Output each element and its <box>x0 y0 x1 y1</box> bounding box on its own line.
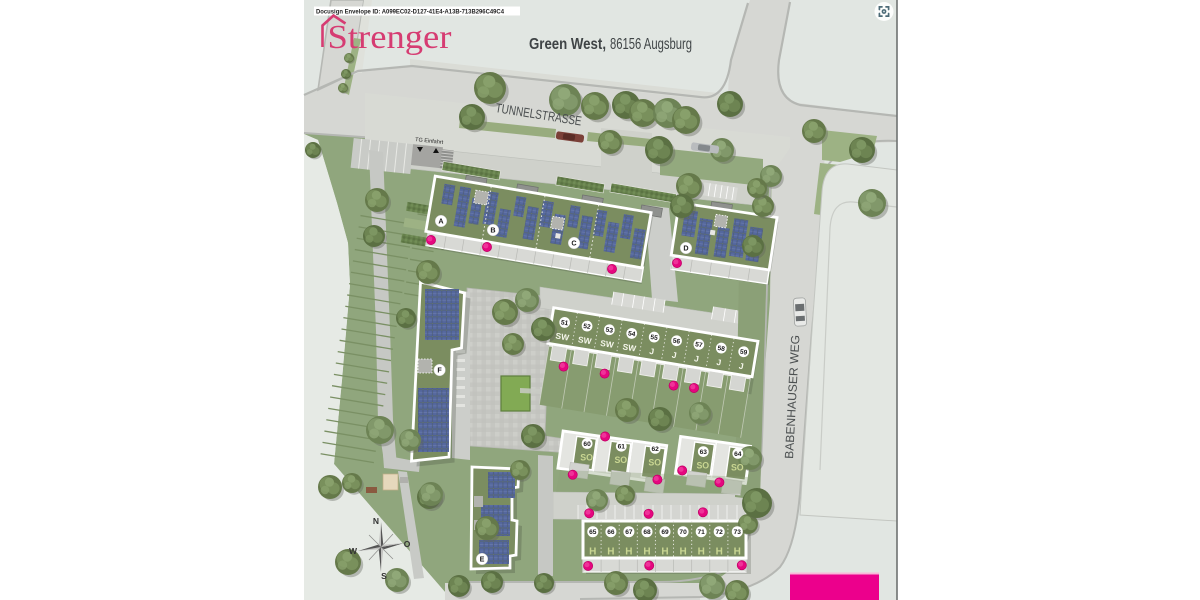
svg-text:H: H <box>625 547 632 558</box>
svg-text:N: N <box>373 516 379 526</box>
svg-text:H: H <box>698 547 705 558</box>
svg-text:SO: SO <box>580 453 593 463</box>
svg-text:69: 69 <box>661 529 669 536</box>
svg-text:SO: SO <box>614 455 627 465</box>
svg-text:55: 55 <box>650 334 659 342</box>
svg-text:57: 57 <box>695 341 704 349</box>
svg-text:54: 54 <box>627 330 636 338</box>
svg-text:56: 56 <box>672 338 681 346</box>
svg-text:S: S <box>381 571 387 581</box>
svg-text:70: 70 <box>679 529 687 536</box>
svg-text:SO: SO <box>648 457 661 467</box>
svg-text:62: 62 <box>652 446 660 453</box>
svg-text:SO: SO <box>731 462 744 472</box>
svg-text:68: 68 <box>643 529 651 536</box>
svg-text:SO: SO <box>696 461 709 471</box>
svg-text:59: 59 <box>739 349 748 357</box>
svg-text:53: 53 <box>605 327 614 335</box>
svg-text:H: H <box>643 547 650 558</box>
svg-text:72: 72 <box>716 529 724 536</box>
svg-text:Docusign Envelope ID: A099EC02: Docusign Envelope ID: A099EC02-D127-41E4… <box>316 9 504 16</box>
svg-text:58: 58 <box>717 345 726 353</box>
svg-text:60: 60 <box>583 441 591 448</box>
svg-text:71: 71 <box>698 529 706 536</box>
svg-text:B: B <box>490 226 495 235</box>
svg-text:H: H <box>679 547 686 558</box>
svg-text:H: H <box>716 547 723 558</box>
svg-text:73: 73 <box>734 529 742 536</box>
svg-text:O: O <box>404 539 411 549</box>
svg-text:52: 52 <box>583 323 592 331</box>
svg-text:66: 66 <box>607 529 615 536</box>
svg-text:Green West,: Green West, <box>529 36 606 53</box>
svg-text:D: D <box>683 244 688 253</box>
svg-text:H: H <box>607 547 614 558</box>
svg-text:E: E <box>480 555 485 564</box>
svg-text:H: H <box>661 547 668 558</box>
svg-text:63: 63 <box>700 449 708 456</box>
svg-text:H: H <box>589 547 596 558</box>
svg-text:86156 Augsburg: 86156 Augsburg <box>610 36 692 53</box>
svg-text:A: A <box>438 217 443 226</box>
svg-text:64: 64 <box>734 451 742 458</box>
svg-text:65: 65 <box>589 529 597 536</box>
svg-text:C: C <box>571 239 576 248</box>
svg-text:61: 61 <box>618 444 626 451</box>
svg-text:F: F <box>437 366 442 375</box>
svg-text:H: H <box>734 547 741 558</box>
svg-text:67: 67 <box>625 529 633 536</box>
svg-text:Strenger: Strenger <box>328 19 453 56</box>
svg-text:W: W <box>349 546 358 556</box>
svg-text:51: 51 <box>560 319 569 327</box>
